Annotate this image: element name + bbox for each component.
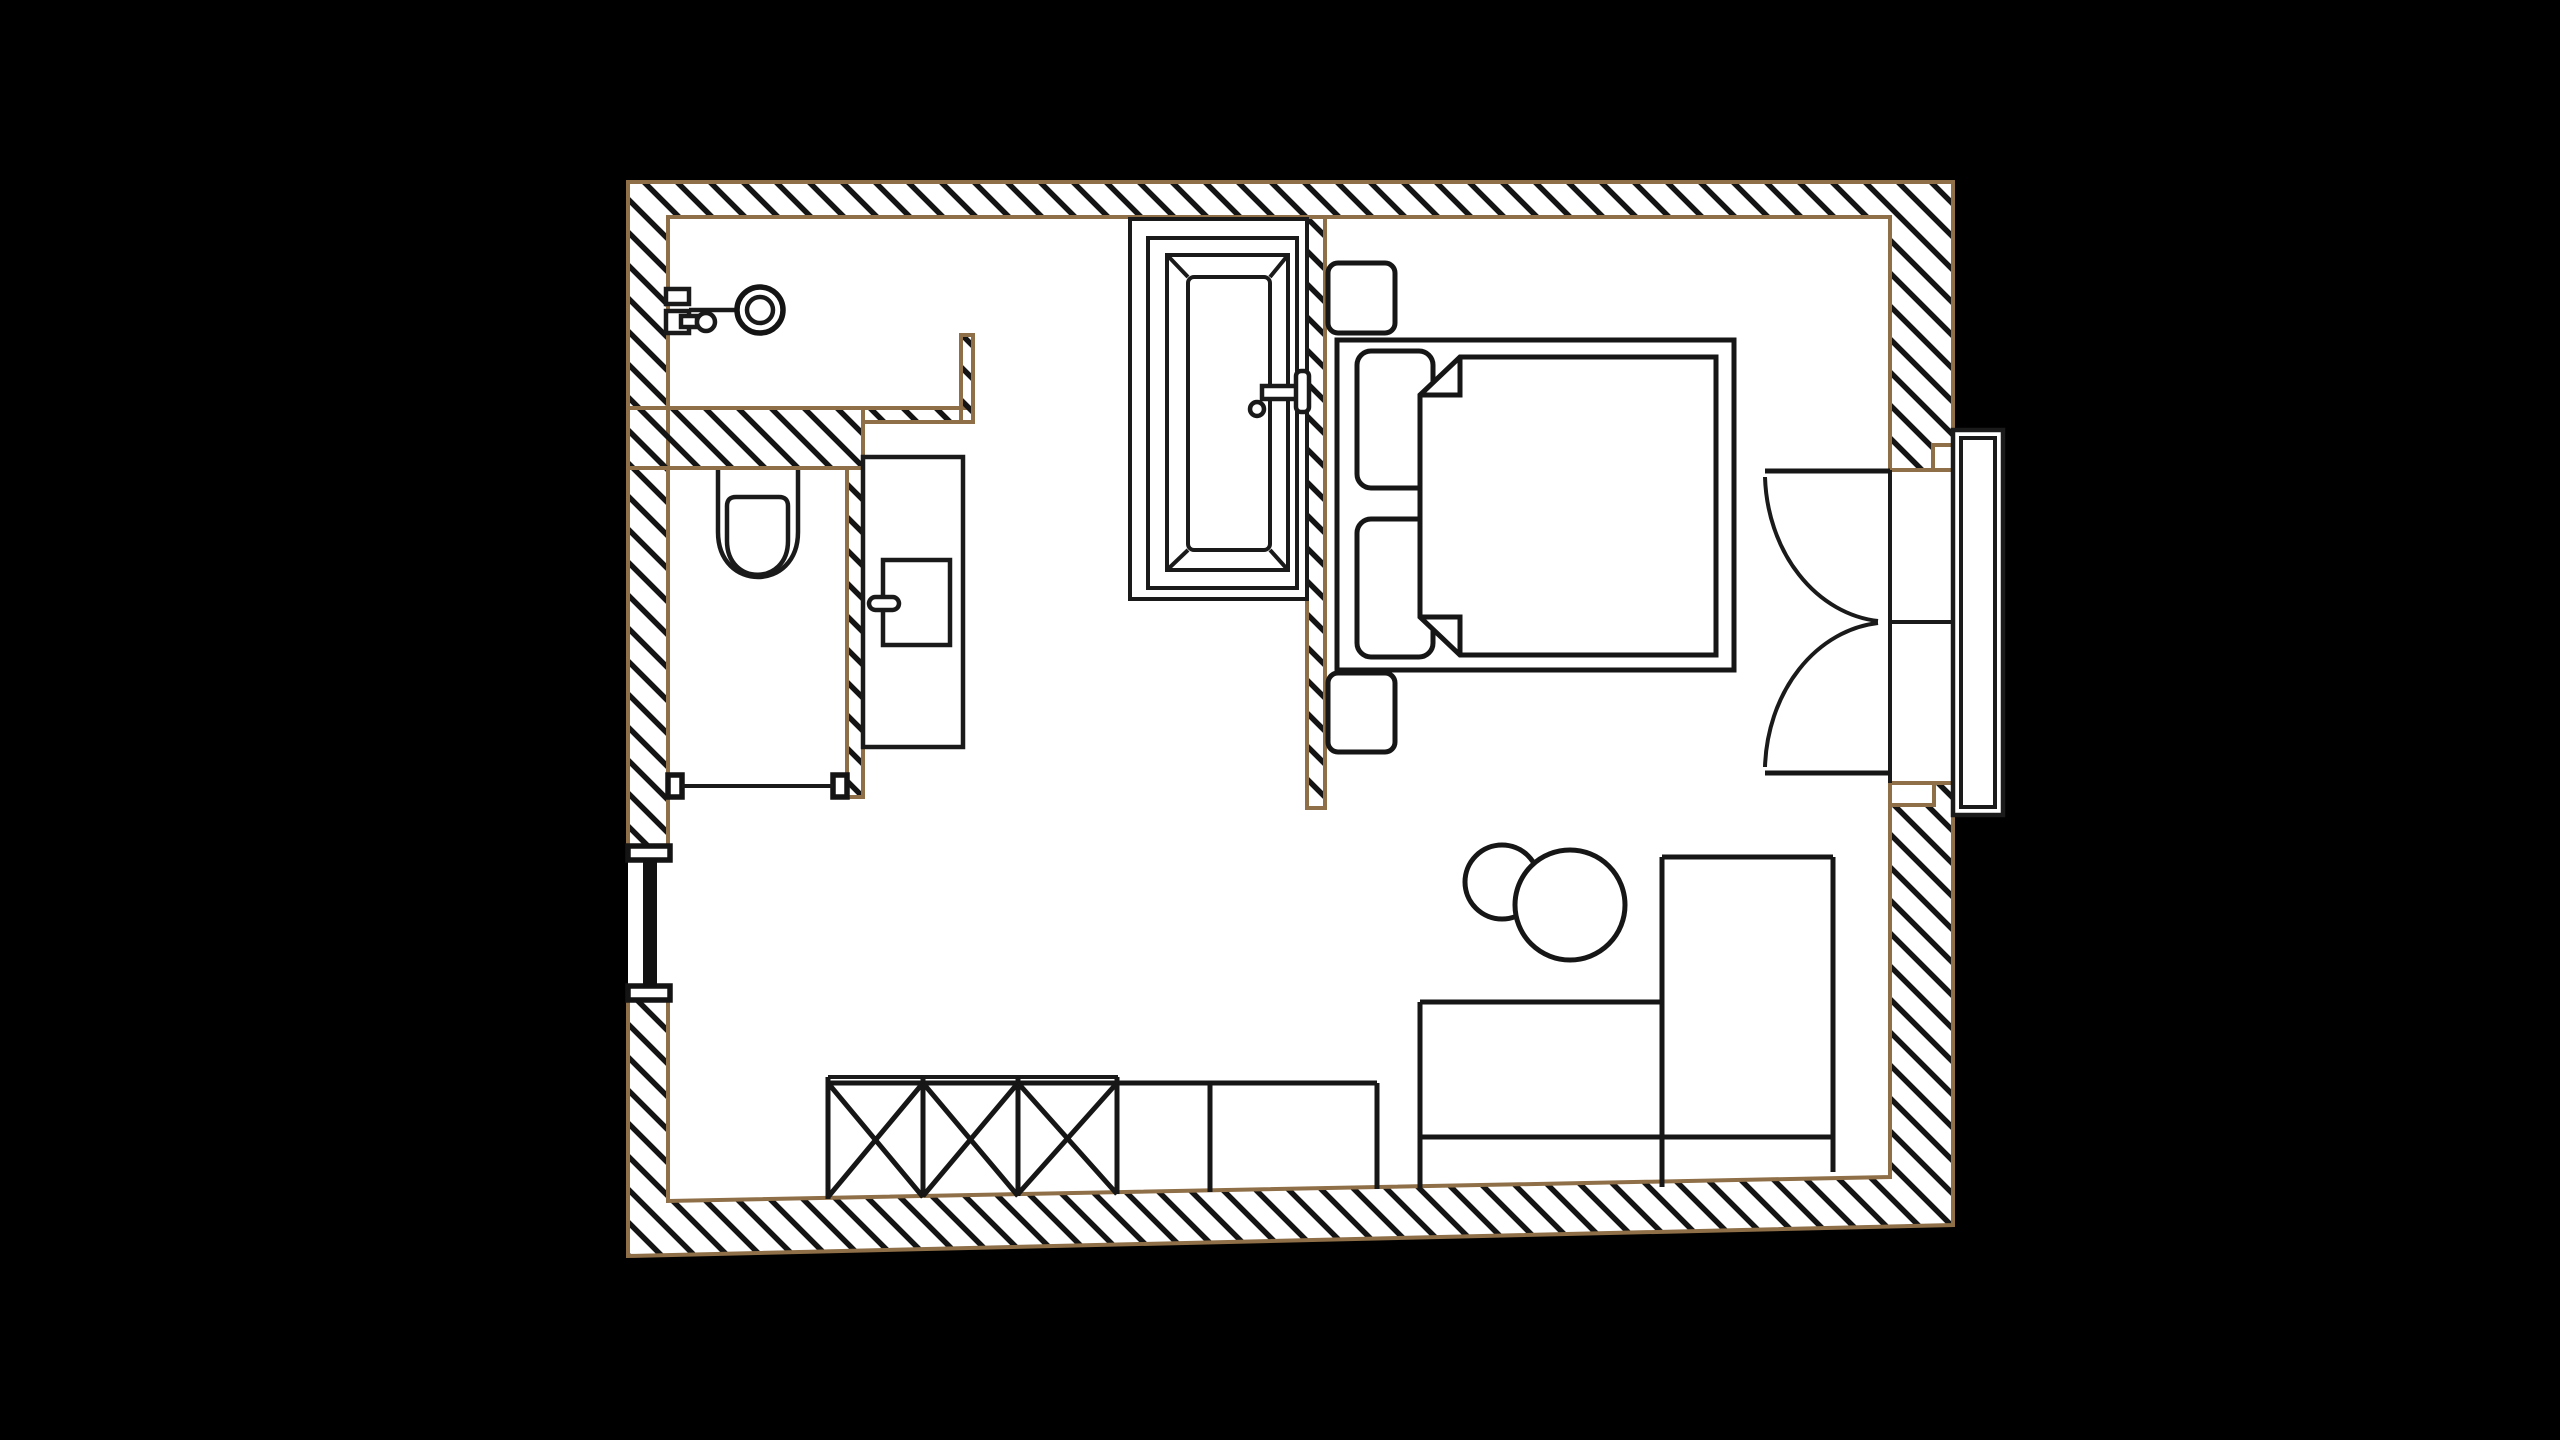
toilet-door-post-left bbox=[668, 775, 682, 797]
floor-plan-svg bbox=[0, 0, 2560, 1440]
left-window-jamb-top bbox=[628, 846, 670, 860]
toilet-door-post-right bbox=[833, 775, 847, 797]
bathtub-faucet-base bbox=[1296, 371, 1309, 412]
window-jamb-notch-top bbox=[1933, 445, 1953, 470]
nightstand-bottom bbox=[1328, 673, 1395, 752]
floor-plan-screenshot bbox=[0, 0, 2560, 1440]
toilet-room-right-wall bbox=[847, 468, 863, 797]
faucet-wall-plate-top bbox=[666, 289, 689, 304]
vanity-cabinet-handle bbox=[869, 597, 899, 610]
nightstand-top bbox=[1328, 263, 1395, 333]
left-window-glass bbox=[643, 860, 657, 987]
bathtub-bedroom-wall bbox=[1307, 217, 1325, 808]
faucet-knob bbox=[697, 313, 715, 331]
bed-duvet bbox=[1420, 357, 1716, 655]
partition-stub-wall bbox=[961, 335, 973, 422]
toilet-seat bbox=[727, 497, 788, 575]
window-jamb-notch-bottom bbox=[1890, 783, 1934, 805]
bathroom-bottom-wall bbox=[628, 408, 863, 468]
thin-partition-wall bbox=[863, 408, 973, 422]
faucet-head-outer bbox=[737, 287, 783, 333]
side-table-large bbox=[1515, 850, 1625, 960]
faucet-valve-box bbox=[681, 316, 697, 327]
left-window-jamb-bottom bbox=[628, 986, 670, 1000]
